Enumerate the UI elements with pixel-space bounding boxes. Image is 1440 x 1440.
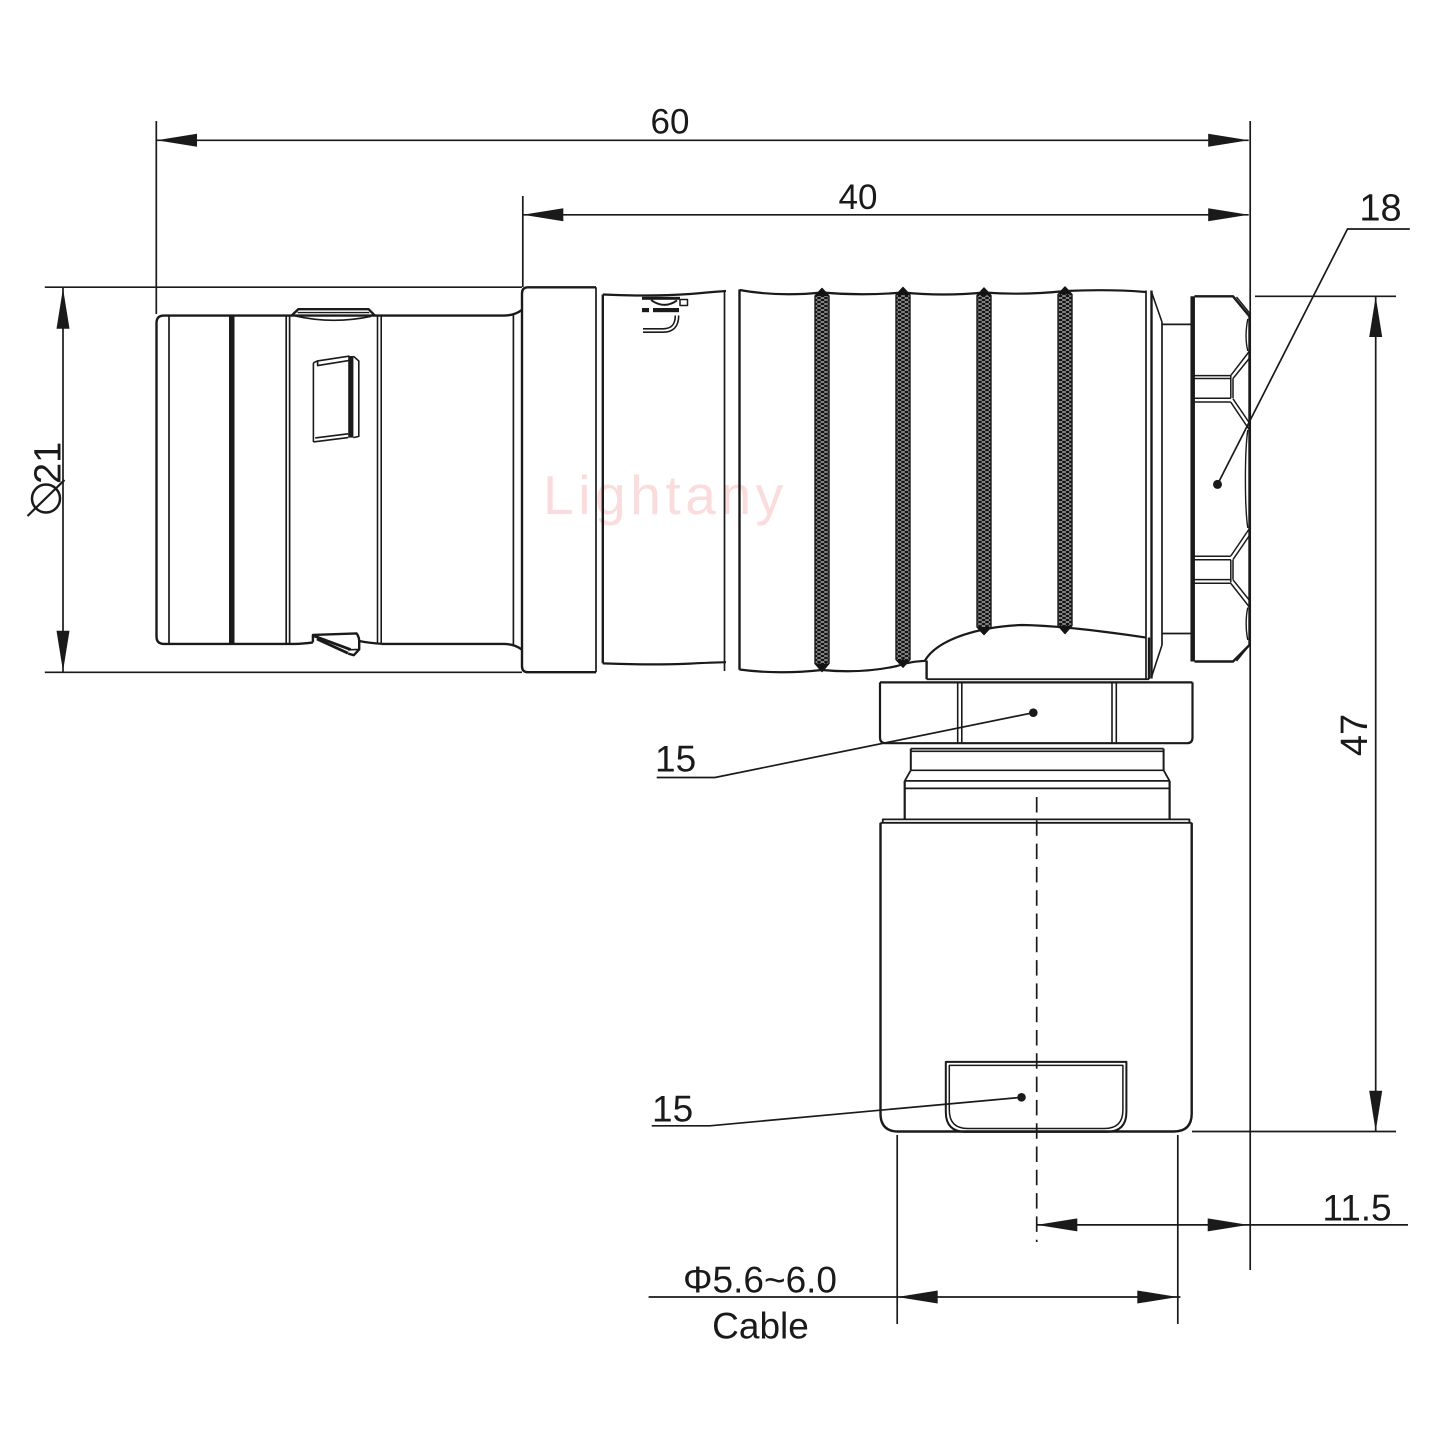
svg-text:60: 60: [651, 103, 690, 142]
svg-text:40: 40: [839, 178, 878, 217]
svg-text:47: 47: [1334, 714, 1376, 756]
svg-text:21: 21: [28, 442, 70, 484]
svg-text:Lightany: Lightany: [543, 464, 788, 526]
svg-text:Φ5.6~6.0: Φ5.6~6.0: [683, 1260, 837, 1301]
svg-text:15: 15: [655, 739, 696, 780]
svg-text:15: 15: [652, 1089, 693, 1130]
svg-text:Cable: Cable: [712, 1306, 809, 1347]
svg-text:11.5: 11.5: [1322, 1188, 1391, 1229]
svg-text:18: 18: [1359, 188, 1401, 230]
